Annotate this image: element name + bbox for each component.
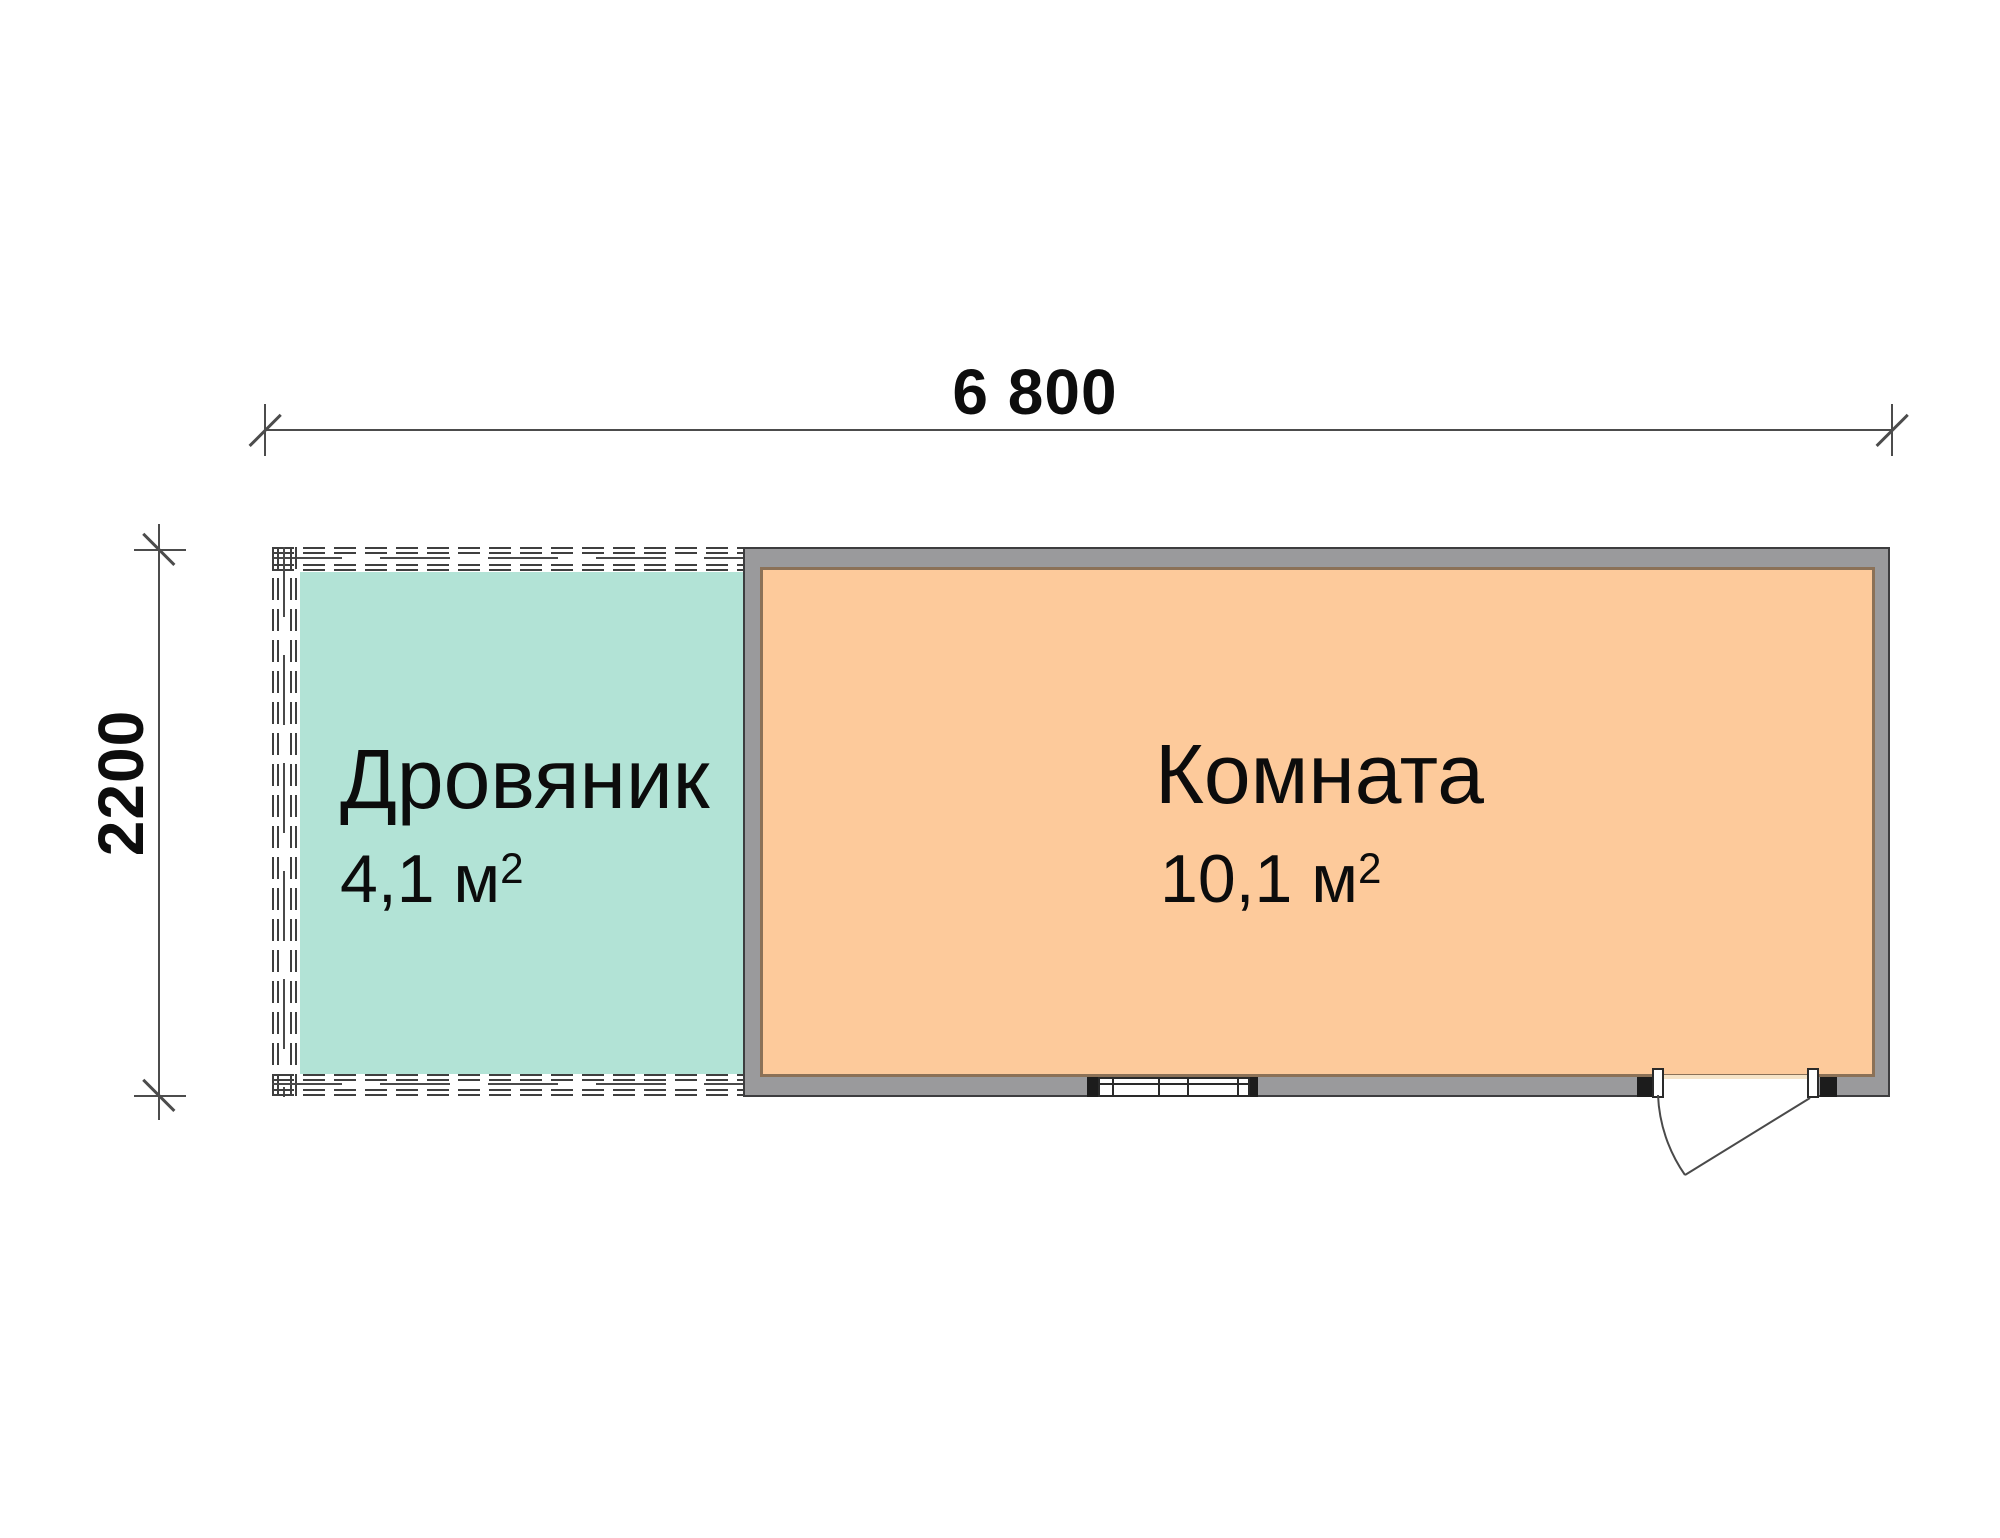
wall-end-cap (1250, 1077, 1258, 1097)
floor-plan-canvas: 6 800 2200 Дровяник 4,1 м2 Комна (0, 0, 2000, 1538)
door-swing (1630, 1085, 1850, 1215)
width-dimension-line (265, 429, 1892, 431)
room-drovyanik-name: Дровяник (340, 737, 710, 821)
wall-end-cap (1087, 1077, 1098, 1097)
dashed-wall-segment (272, 1083, 743, 1085)
room-komnata-area: 10,1 м2 (1160, 845, 1381, 913)
room-komnata-fill (760, 567, 1875, 1077)
window-frame (1098, 1077, 1250, 1097)
door-leaf (1685, 1098, 1810, 1175)
dashed-wall-segment (290, 547, 297, 1097)
dashed-wall-segment (272, 564, 743, 571)
dashed-wall-segment (283, 547, 285, 1097)
window-mullion (1158, 1079, 1160, 1095)
dashed-wall-segment (272, 1089, 743, 1096)
door-swing-arc (1658, 1095, 1685, 1175)
dashed-wall-segment (272, 1074, 743, 1081)
window-mullion (1187, 1079, 1189, 1095)
dashed-wall-segment (272, 547, 279, 1097)
window-glass-line (1100, 1083, 1248, 1085)
room-komnata-name: Комната (1155, 732, 1484, 816)
window-mullion (1237, 1079, 1239, 1095)
window-mullion (1112, 1079, 1114, 1095)
height-dimension-line (158, 524, 160, 1120)
door-threshold-line (1663, 1075, 1808, 1079)
height-dimension-label: 2200 (89, 710, 153, 856)
width-dimension-label: 6 800 (952, 360, 1117, 424)
dashed-wall-segment (272, 557, 743, 559)
room-drovyanik-area: 4,1 м2 (340, 845, 524, 913)
dashed-wall-segment (272, 547, 743, 554)
